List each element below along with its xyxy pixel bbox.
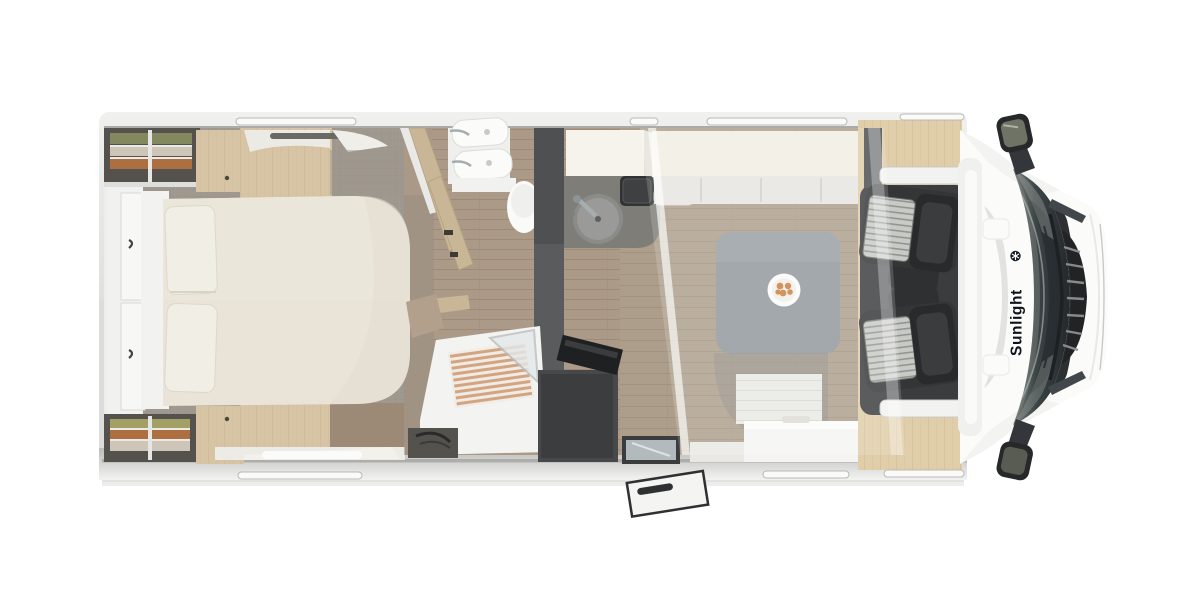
svg-text:Sunlight: Sunlight: [1009, 289, 1026, 356]
